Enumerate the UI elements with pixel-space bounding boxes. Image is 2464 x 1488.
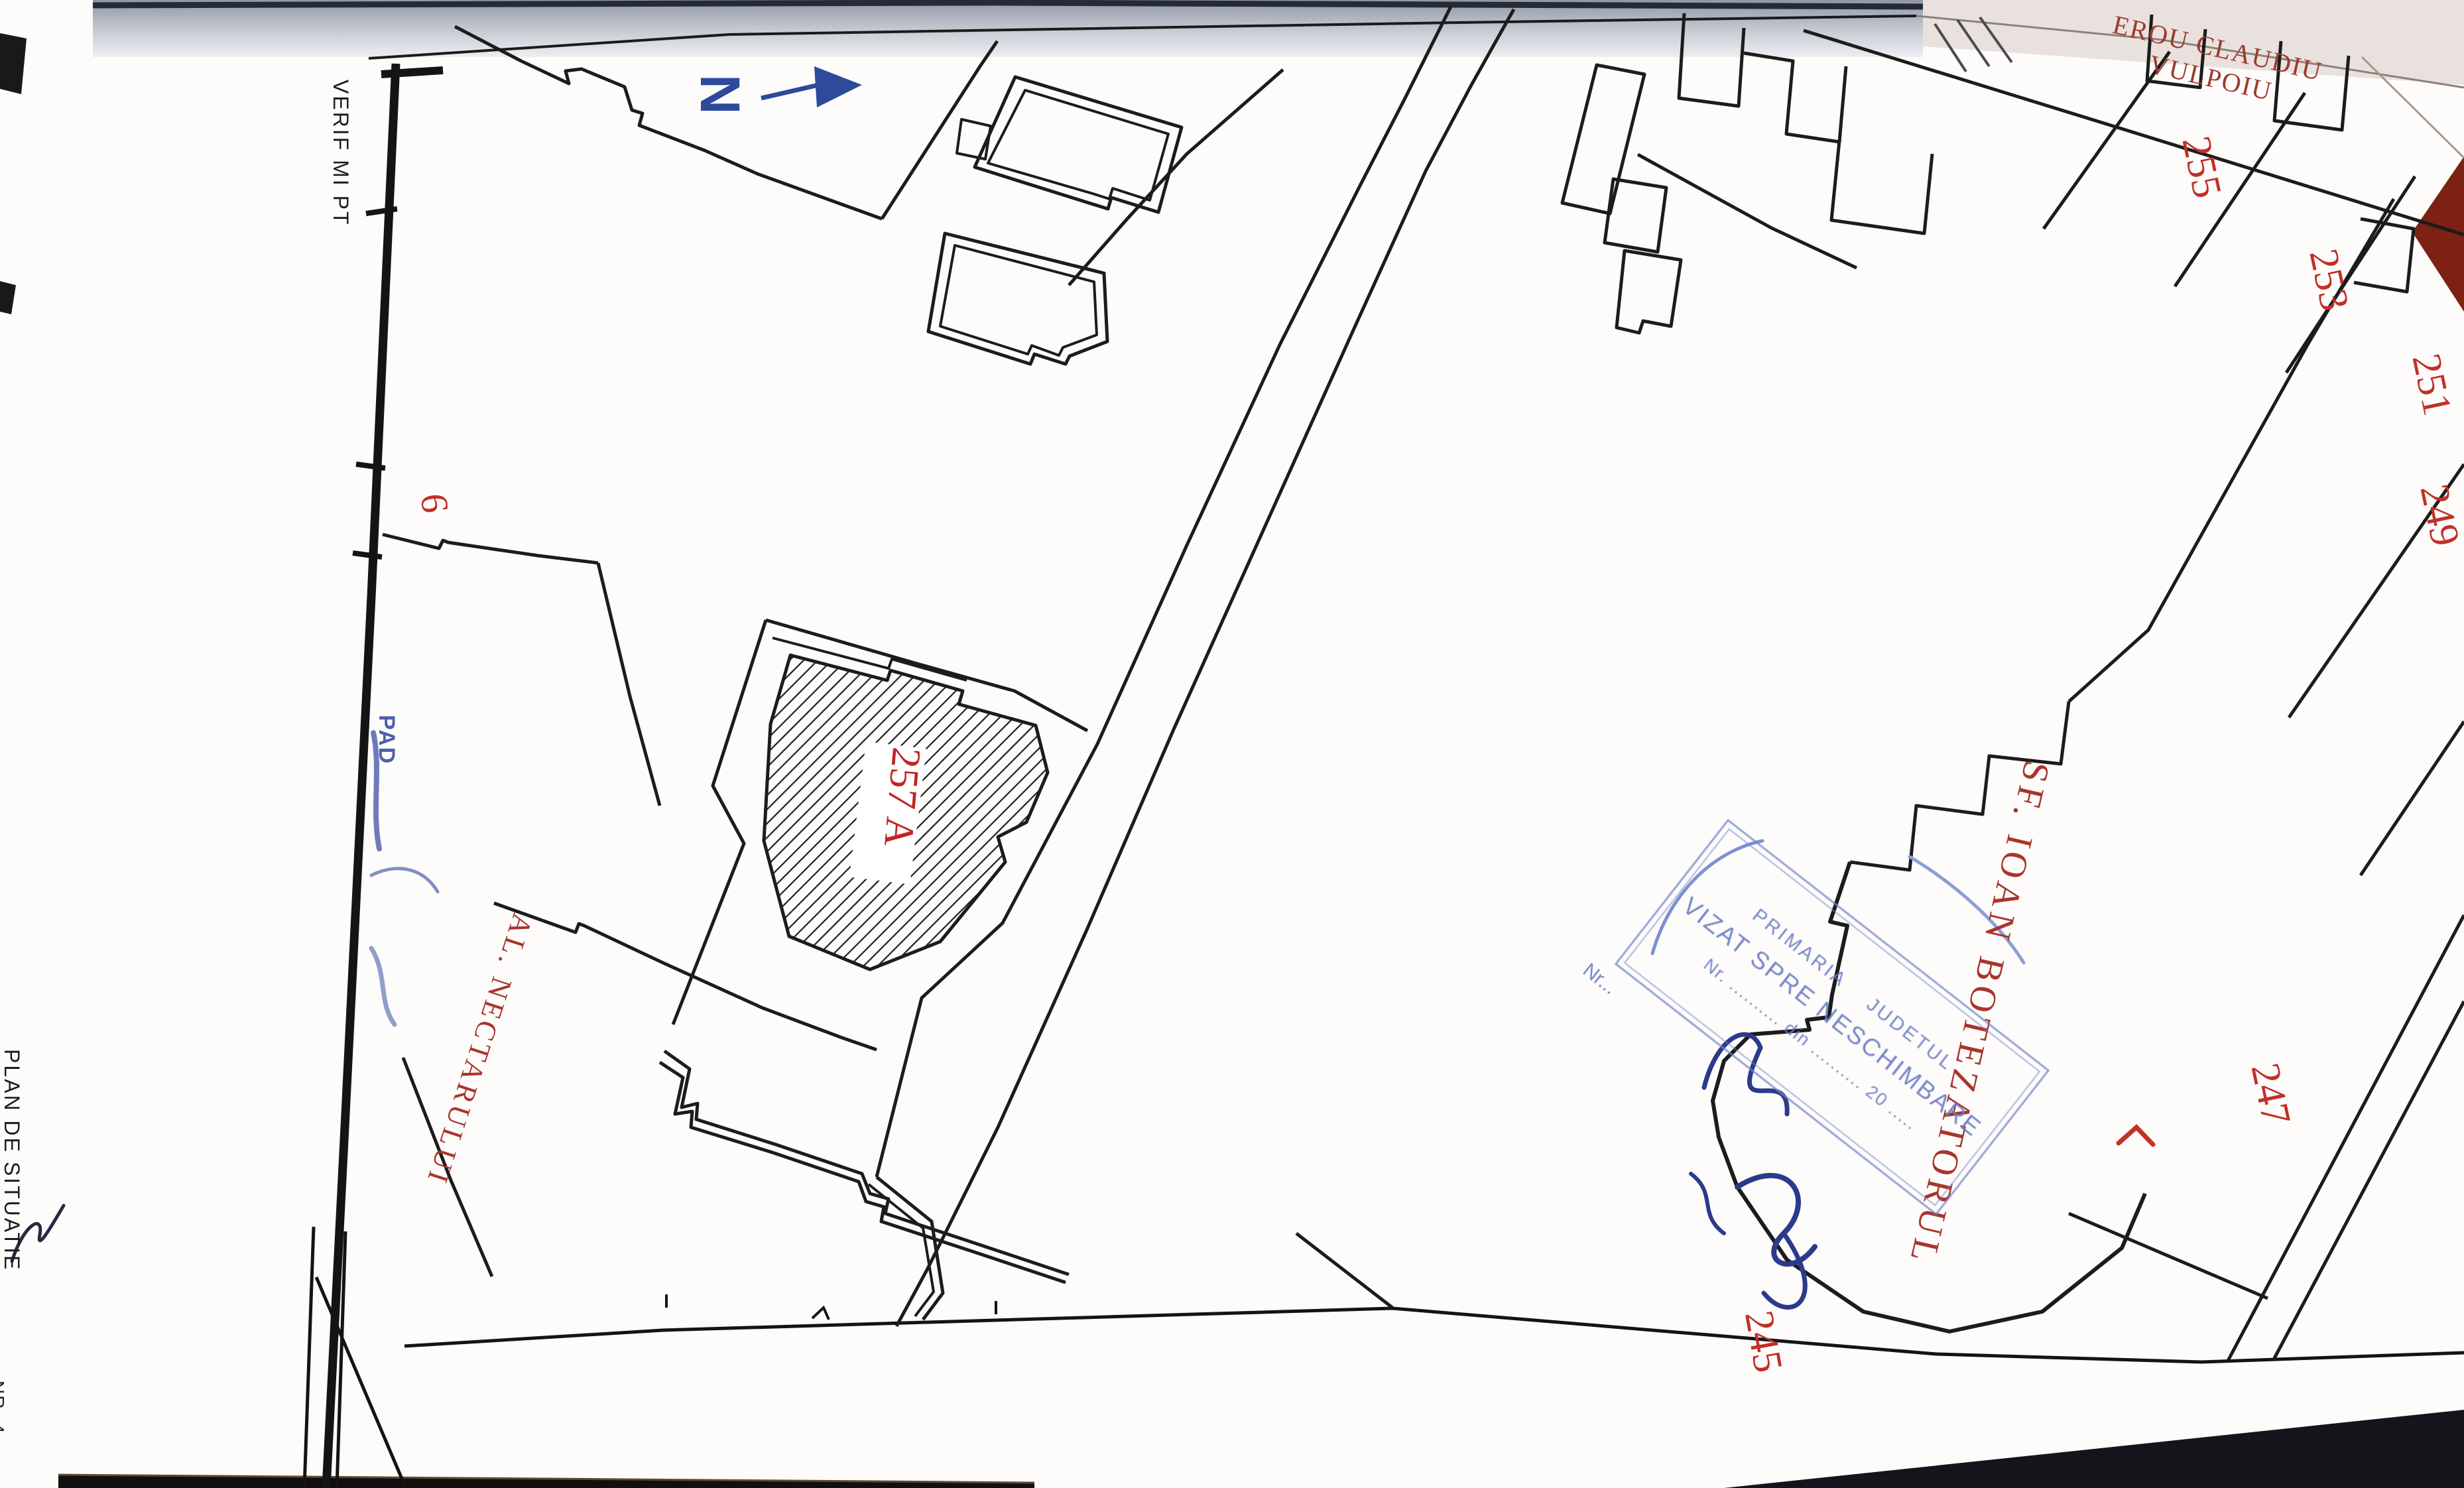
plan-frame <box>304 64 2464 1488</box>
sf-ioan-street-edges <box>2228 915 2464 1361</box>
buildings-middle <box>928 77 1182 364</box>
red-check-mark <box>2119 1127 2153 1145</box>
parcel-number-257a: 257 A <box>877 746 927 849</box>
north-arrow-head <box>814 66 862 107</box>
plan-type-label: PLAN DE SITUATIE <box>1 1049 23 1271</box>
parcel-number-6: 6 <box>414 492 454 515</box>
scan-artifacts <box>0 0 2464 1488</box>
north-arrow <box>761 66 862 107</box>
road-east-edge <box>896 9 1514 1326</box>
north-letter: N <box>692 74 748 115</box>
plan-bottom-border <box>404 1308 2464 1362</box>
page-corner-dark-red <box>2412 156 2464 312</box>
parcels-right-block <box>1562 13 2464 1361</box>
scanned-site-plan: VERIF MI PT PLAN DE SITUATIE NR. 4 N ERO… <box>0 0 2464 1488</box>
corner-fragment-label: NR. 4 <box>0 1381 7 1435</box>
road-west-edge <box>877 7 1451 1177</box>
parcel-number-245: 245 <box>1738 1308 1789 1375</box>
stamp-pad-fragment: PAD <box>375 715 398 765</box>
parcels-left-block <box>383 7 1514 1326</box>
site-plan-linework <box>0 0 2464 1488</box>
verif-label: VERIF MI PT <box>330 80 351 226</box>
